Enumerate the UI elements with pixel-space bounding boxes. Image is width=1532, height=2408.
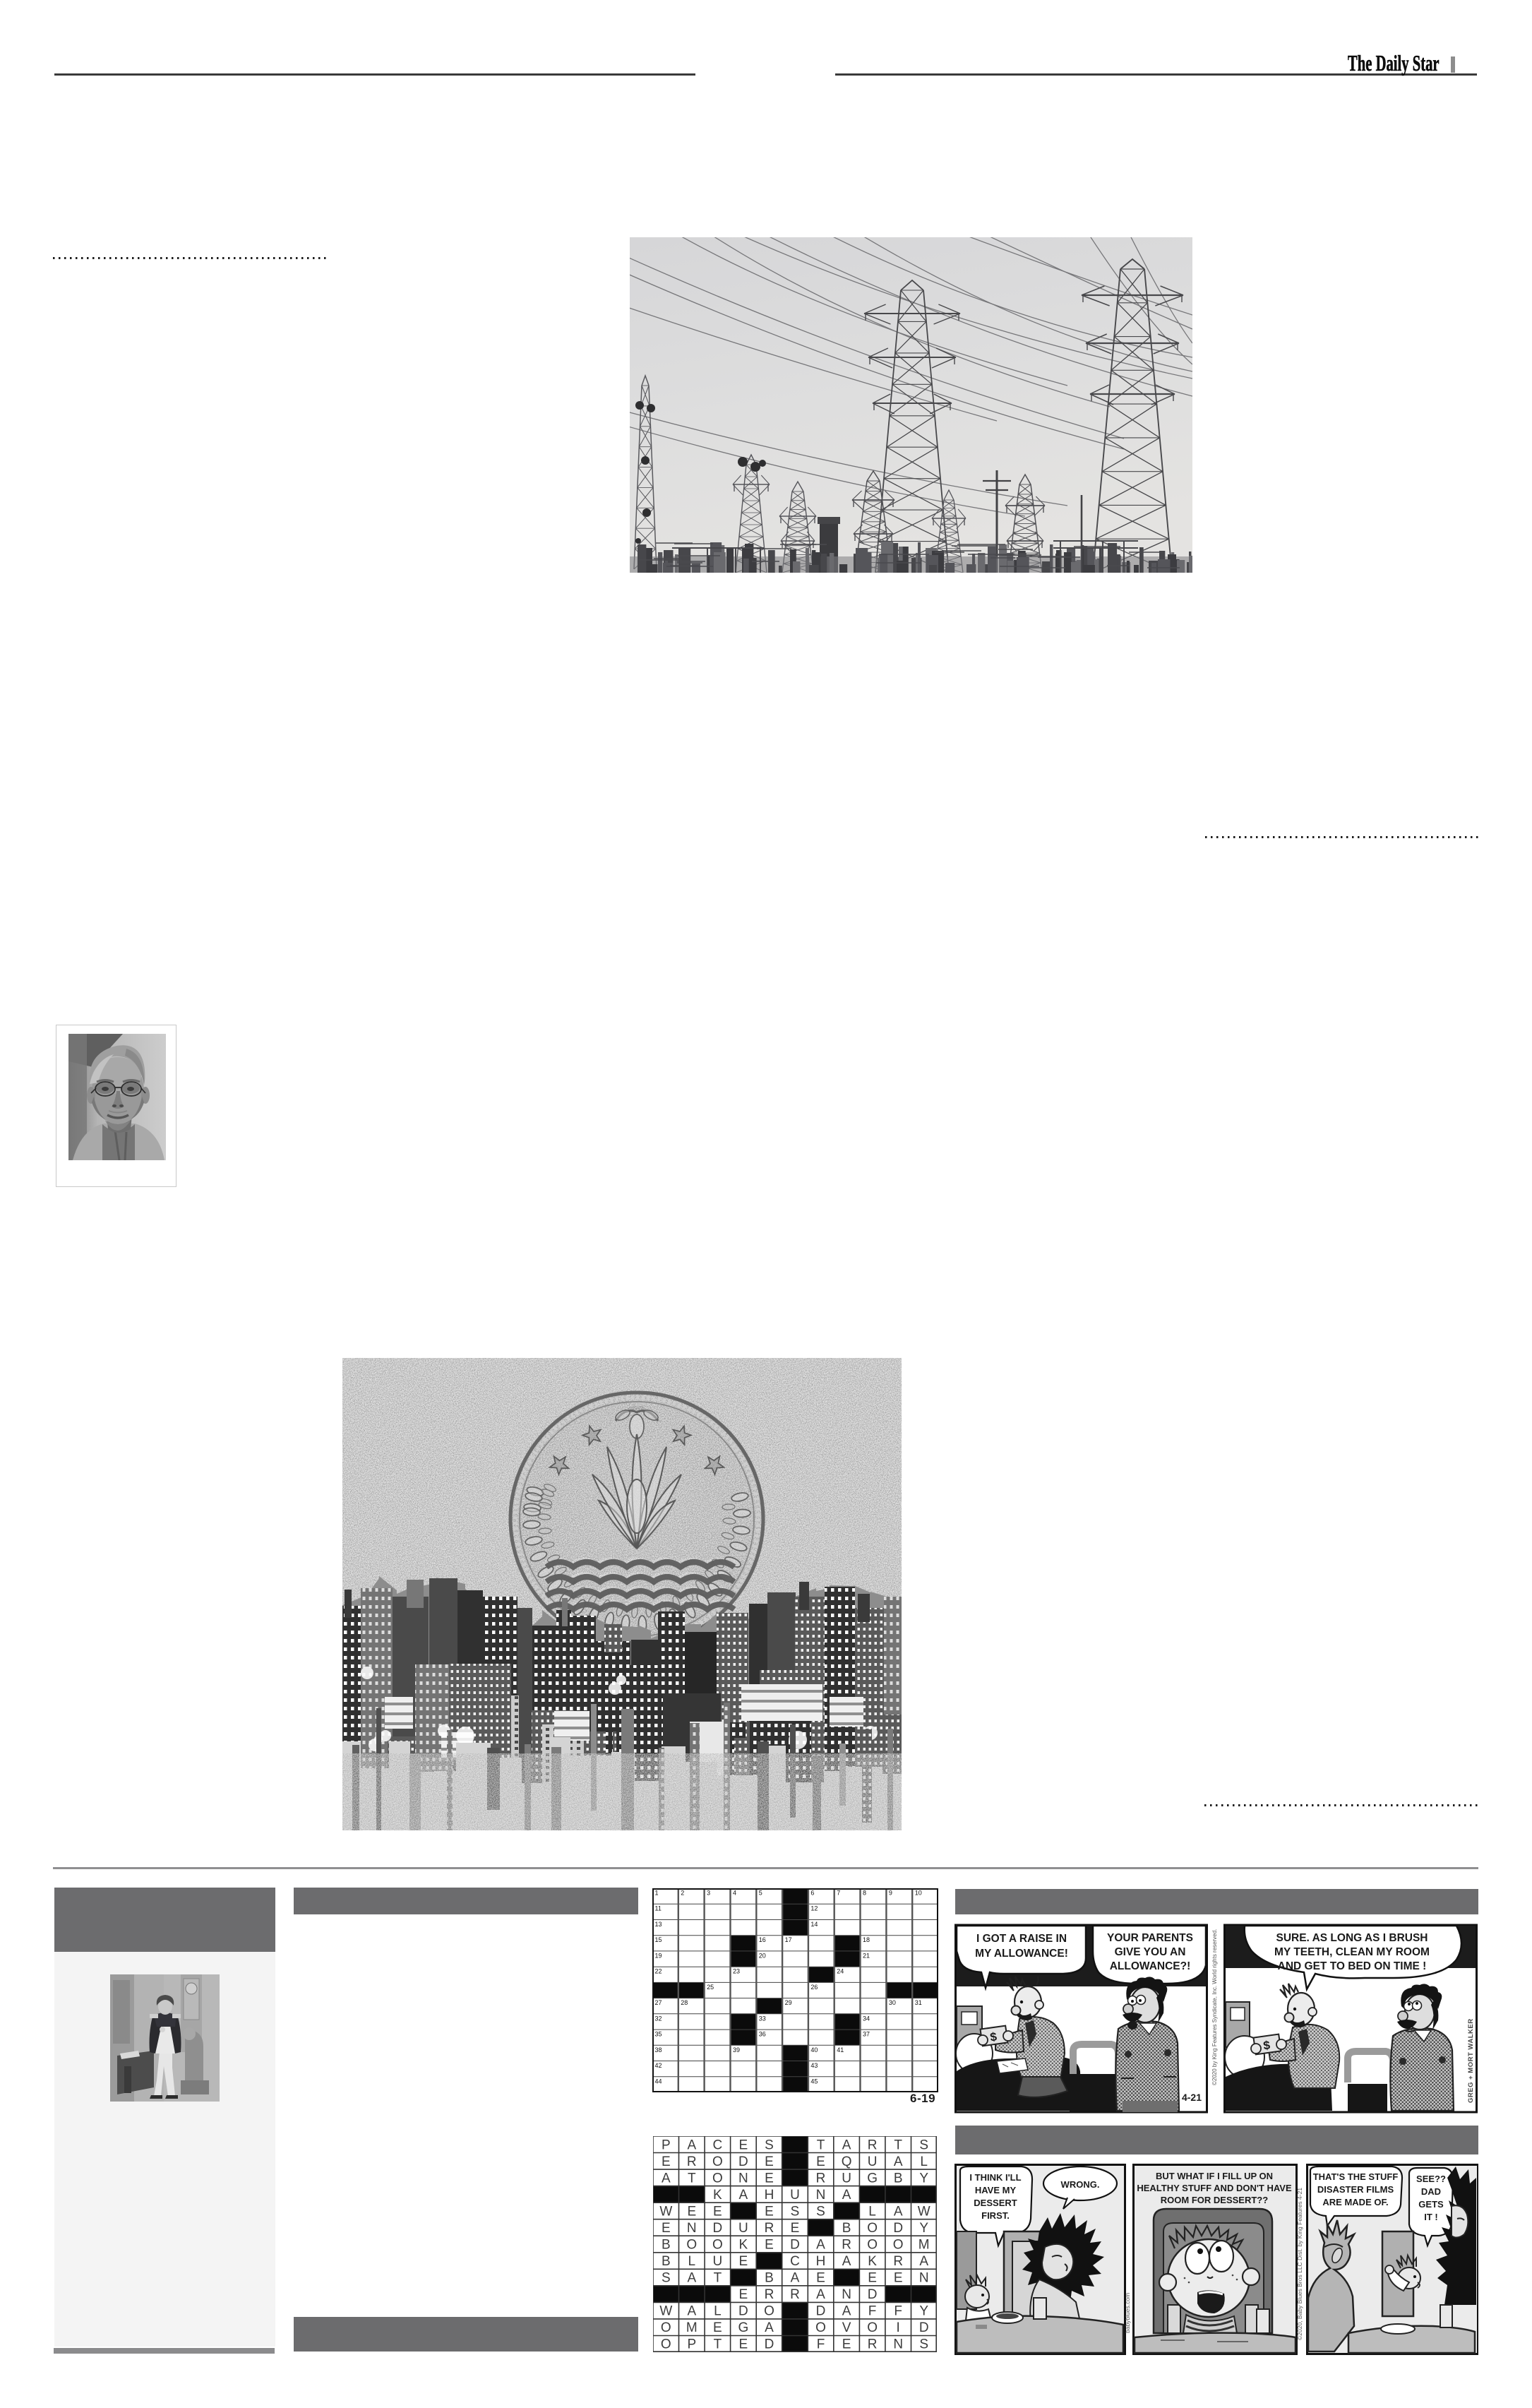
- svg-text:F: F: [817, 2337, 825, 2352]
- svg-text:O: O: [867, 2238, 878, 2253]
- svg-text:O: O: [712, 2238, 723, 2253]
- svg-text:L: L: [868, 2204, 876, 2219]
- svg-text:A: A: [687, 2138, 696, 2152]
- svg-text:23: 23: [733, 1968, 740, 1975]
- svg-text:R: R: [816, 2171, 826, 2186]
- svg-text:GETS: GETS: [1418, 2199, 1444, 2210]
- svg-text:E: E: [662, 2154, 671, 2169]
- svg-text:O: O: [867, 2320, 878, 2335]
- svg-text:A: A: [842, 2304, 851, 2319]
- svg-text:M: M: [918, 2238, 930, 2253]
- svg-text:D: D: [738, 2304, 748, 2319]
- svg-text:F: F: [894, 2304, 902, 2319]
- svg-text:S: S: [662, 2271, 671, 2286]
- svg-text:ROOM FOR DESSERT??: ROOM FOR DESSERT??: [1161, 2195, 1268, 2205]
- svg-text:YOUR PARENTS: YOUR PARENTS: [1107, 1932, 1193, 1944]
- svg-text:R: R: [687, 2154, 697, 2169]
- svg-text:R: R: [893, 2254, 903, 2269]
- svg-text:babyblues.com: babyblues.com: [1124, 2293, 1131, 2333]
- svg-text:1: 1: [655, 1890, 659, 1897]
- svg-text:H: H: [816, 2254, 826, 2269]
- svg-text:C: C: [713, 2138, 723, 2152]
- svg-text:10: 10: [915, 1890, 922, 1897]
- svg-text:S: S: [919, 2138, 928, 2152]
- svg-text:P: P: [662, 2138, 671, 2152]
- svg-text:27: 27: [655, 1999, 662, 2006]
- svg-text:E: E: [739, 2337, 748, 2352]
- svg-text:12: 12: [810, 1905, 818, 1912]
- svg-text:Y: Y: [919, 2221, 928, 2236]
- svg-text:O: O: [686, 2238, 697, 2253]
- svg-text:E: E: [868, 2271, 877, 2286]
- svg-text:O: O: [712, 2154, 723, 2169]
- svg-text:E: E: [816, 2154, 825, 2169]
- svg-text:A: A: [894, 2204, 903, 2219]
- svg-text:IT !: IT !: [1424, 2212, 1438, 2222]
- svg-text:L: L: [920, 2154, 928, 2169]
- svg-text:E: E: [739, 2254, 748, 2269]
- svg-text:6: 6: [810, 1890, 814, 1897]
- svg-text:15: 15: [655, 1936, 662, 1943]
- svg-text:MY ALLOWANCE!: MY ALLOWANCE!: [975, 1948, 1068, 1960]
- svg-text:L: L: [688, 2254, 696, 2269]
- svg-text:O: O: [815, 2320, 826, 2335]
- svg-text:D: D: [738, 2154, 748, 2169]
- svg-text:C: C: [790, 2254, 800, 2269]
- svg-text:42: 42: [655, 2062, 662, 2069]
- svg-text:E: E: [765, 2204, 774, 2219]
- svg-text:T: T: [714, 2337, 722, 2352]
- svg-text:F: F: [868, 2304, 877, 2319]
- svg-text:37: 37: [863, 2031, 870, 2038]
- svg-text:D: D: [816, 2304, 826, 2319]
- svg-text:T: T: [688, 2171, 696, 2186]
- svg-text:24: 24: [837, 1968, 844, 1975]
- svg-text:GIVE YOU AN: GIVE YOU AN: [1115, 1946, 1186, 1958]
- svg-text:T: T: [894, 2138, 902, 2152]
- svg-text:BUT WHAT IF I FILL UP ON: BUT WHAT IF I FILL UP ON: [1156, 2171, 1273, 2181]
- svg-text:E: E: [713, 2204, 722, 2219]
- svg-text:U: U: [738, 2221, 748, 2236]
- svg-text:L: L: [714, 2304, 722, 2319]
- svg-text:A: A: [816, 2238, 825, 2253]
- svg-text:©2020 by King Features Syndica: ©2020 by King Features Syndicate, Inc. W…: [1211, 1929, 1218, 2085]
- svg-text:E: E: [739, 2287, 748, 2302]
- svg-text:25: 25: [707, 1984, 714, 1991]
- svg-text:N: N: [816, 2188, 826, 2203]
- svg-text:U: U: [868, 2154, 878, 2169]
- svg-text:A: A: [842, 2138, 851, 2152]
- svg-text:B: B: [662, 2254, 671, 2269]
- svg-text:18: 18: [863, 1936, 870, 1943]
- svg-text:T: T: [817, 2138, 825, 2152]
- svg-text:21: 21: [863, 1952, 870, 1959]
- svg-text:FIRST.: FIRST.: [981, 2210, 1010, 2221]
- svg-text:30: 30: [889, 1999, 896, 2006]
- svg-text:A: A: [842, 2188, 851, 2203]
- svg-text:E: E: [894, 2271, 903, 2286]
- svg-text:SEE??: SEE??: [1416, 2174, 1446, 2184]
- svg-text:DAD: DAD: [1421, 2186, 1441, 2197]
- svg-text:40: 40: [810, 2046, 818, 2054]
- svg-text:16: 16: [759, 1936, 766, 1943]
- svg-text:V: V: [842, 2320, 851, 2335]
- svg-text:W: W: [659, 2304, 672, 2319]
- svg-text:HEALTHY STUFF AND DON'T HAVE: HEALTHY STUFF AND DON'T HAVE: [1137, 2183, 1292, 2193]
- svg-text:A: A: [816, 2287, 825, 2302]
- svg-text:N: N: [893, 2337, 903, 2352]
- svg-text:2: 2: [681, 1890, 684, 1897]
- svg-text:O: O: [712, 2171, 723, 2186]
- svg-text:ARE MADE OF.: ARE MADE OF.: [1322, 2197, 1388, 2207]
- svg-text:5: 5: [759, 1890, 762, 1897]
- svg-text:M: M: [686, 2320, 698, 2335]
- svg-text:38: 38: [655, 2046, 662, 2054]
- svg-text:4-21: 4-21: [1182, 2092, 1202, 2103]
- svg-text:13: 13: [655, 1921, 662, 1928]
- svg-text:39: 39: [733, 2046, 740, 2054]
- svg-text:O: O: [764, 2304, 774, 2319]
- svg-text:D: D: [919, 2320, 929, 2335]
- svg-text:N: N: [919, 2271, 929, 2286]
- svg-text:W: W: [918, 2204, 930, 2219]
- svg-text:E: E: [842, 2337, 851, 2352]
- svg-text:S: S: [765, 2138, 774, 2152]
- svg-text:I GOT A RAISE IN: I GOT A RAISE IN: [976, 1933, 1067, 1945]
- svg-text:A: A: [791, 2271, 800, 2286]
- svg-text:29: 29: [785, 1999, 792, 2006]
- svg-text:44: 44: [655, 2078, 662, 2085]
- svg-text:4: 4: [733, 1890, 736, 1897]
- svg-text:D: D: [765, 2337, 774, 2352]
- svg-text:A: A: [919, 2254, 928, 2269]
- svg-text:R: R: [868, 2337, 878, 2352]
- svg-text:R: R: [765, 2221, 774, 2236]
- svg-text:14: 14: [810, 1921, 818, 1928]
- svg-text:H: H: [765, 2188, 774, 2203]
- svg-text:I: I: [897, 2320, 900, 2335]
- svg-text:28: 28: [681, 1999, 688, 2006]
- svg-text:11: 11: [655, 1905, 662, 1912]
- svg-text:I THINK I'LL: I THINK I'LL: [969, 2172, 1021, 2183]
- svg-text:O: O: [867, 2221, 878, 2236]
- svg-text:E: E: [739, 2138, 748, 2152]
- svg-text:G: G: [738, 2320, 749, 2335]
- svg-text:DISASTER FILMS: DISASTER FILMS: [1317, 2184, 1394, 2195]
- svg-text:A: A: [765, 2320, 774, 2335]
- svg-text:E: E: [765, 2238, 774, 2253]
- svg-text:45: 45: [810, 2078, 818, 2085]
- svg-text:Y: Y: [919, 2171, 928, 2186]
- svg-text:Q: Q: [842, 2154, 852, 2169]
- svg-text:R: R: [842, 2238, 851, 2253]
- svg-text:A: A: [687, 2304, 696, 2319]
- svg-text:A: A: [687, 2271, 696, 2286]
- svg-text:7: 7: [837, 1890, 840, 1897]
- svg-text:K: K: [868, 2254, 877, 2269]
- svg-text:33: 33: [759, 2015, 766, 2022]
- svg-text:A: A: [842, 2254, 851, 2269]
- svg-text:U: U: [842, 2171, 851, 2186]
- svg-text:E: E: [713, 2320, 722, 2335]
- svg-text:O: O: [661, 2337, 671, 2352]
- svg-text:E: E: [816, 2271, 825, 2286]
- svg-text:ALLOWANCE?!: ALLOWANCE?!: [1110, 1960, 1191, 1972]
- svg-text:8: 8: [863, 1890, 866, 1897]
- svg-text:R: R: [765, 2287, 774, 2302]
- svg-text:U: U: [790, 2188, 800, 2203]
- svg-text:26: 26: [810, 1984, 818, 1991]
- svg-text:MY TEETH, CLEAN MY ROOM: MY TEETH, CLEAN MY ROOM: [1274, 1946, 1430, 1958]
- svg-text:31: 31: [915, 1999, 922, 2006]
- svg-text:E: E: [662, 2221, 671, 2236]
- svg-text:35: 35: [655, 2031, 662, 2038]
- svg-text:B: B: [765, 2271, 774, 2286]
- svg-text:32: 32: [655, 2015, 662, 2022]
- svg-text:22: 22: [655, 1968, 662, 1975]
- svg-text:E: E: [791, 2221, 800, 2236]
- svg-text:S: S: [791, 2204, 800, 2219]
- svg-text:WRONG.: WRONG.: [1061, 2179, 1100, 2190]
- svg-text:O: O: [661, 2320, 671, 2335]
- svg-text:S: S: [919, 2337, 928, 2352]
- svg-text:B: B: [662, 2238, 671, 2253]
- svg-text:K: K: [739, 2238, 748, 2253]
- svg-text:HAVE MY: HAVE MY: [975, 2185, 1017, 2195]
- svg-text:GREG + MORT WALKER: GREG + MORT WALKER: [1467, 2018, 1475, 2103]
- svg-text:AND GET TO BED ON TIME !: AND GET TO BED ON TIME !: [1278, 1960, 1427, 1972]
- svg-text:19: 19: [655, 1952, 662, 1959]
- svg-text:D: D: [713, 2221, 723, 2236]
- svg-text:E: E: [687, 2204, 696, 2219]
- svg-text:41: 41: [837, 2046, 844, 2054]
- svg-text:34: 34: [863, 2015, 870, 2022]
- svg-text:SURE. AS LONG AS I BRUSH: SURE. AS LONG AS I BRUSH: [1276, 1932, 1428, 1944]
- svg-text:W: W: [659, 2204, 672, 2219]
- svg-text:N: N: [738, 2171, 748, 2186]
- svg-text:D: D: [868, 2287, 878, 2302]
- svg-text:A: A: [894, 2154, 903, 2169]
- svg-text:DESSERT: DESSERT: [974, 2198, 1017, 2208]
- svg-text:E: E: [765, 2171, 774, 2186]
- svg-text:N: N: [687, 2221, 697, 2236]
- svg-text:S: S: [816, 2204, 825, 2219]
- svg-text:G: G: [867, 2171, 878, 2186]
- svg-text:U: U: [713, 2254, 723, 2269]
- svg-text:17: 17: [785, 1936, 792, 1943]
- svg-text:43: 43: [810, 2062, 818, 2069]
- svg-text:E: E: [765, 2154, 774, 2169]
- svg-text:O: O: [893, 2238, 904, 2253]
- svg-text:3: 3: [707, 1890, 710, 1897]
- svg-text:THAT'S THE STUFF: THAT'S THE STUFF: [1313, 2171, 1399, 2182]
- svg-text:B: B: [894, 2171, 903, 2186]
- svg-text:A: A: [739, 2188, 748, 2203]
- svg-text:K: K: [713, 2188, 722, 2203]
- svg-text:N: N: [842, 2287, 851, 2302]
- svg-text:R: R: [868, 2138, 878, 2152]
- svg-text:20: 20: [759, 1952, 766, 1959]
- svg-text:A: A: [662, 2171, 671, 2186]
- svg-text:T: T: [714, 2271, 722, 2286]
- svg-text:R: R: [790, 2287, 800, 2302]
- svg-text:Y: Y: [919, 2304, 928, 2319]
- svg-text:9: 9: [889, 1890, 892, 1897]
- svg-text:D: D: [790, 2238, 800, 2253]
- svg-text:B: B: [842, 2221, 851, 2236]
- svg-text:©2020, Baby Blues Bros LLC Dis: ©2020, Baby Blues Bros LLC Dist. by King…: [1296, 2188, 1303, 2340]
- svg-text:D: D: [893, 2221, 903, 2236]
- svg-text:P: P: [687, 2337, 696, 2352]
- svg-text:36: 36: [759, 2031, 766, 2038]
